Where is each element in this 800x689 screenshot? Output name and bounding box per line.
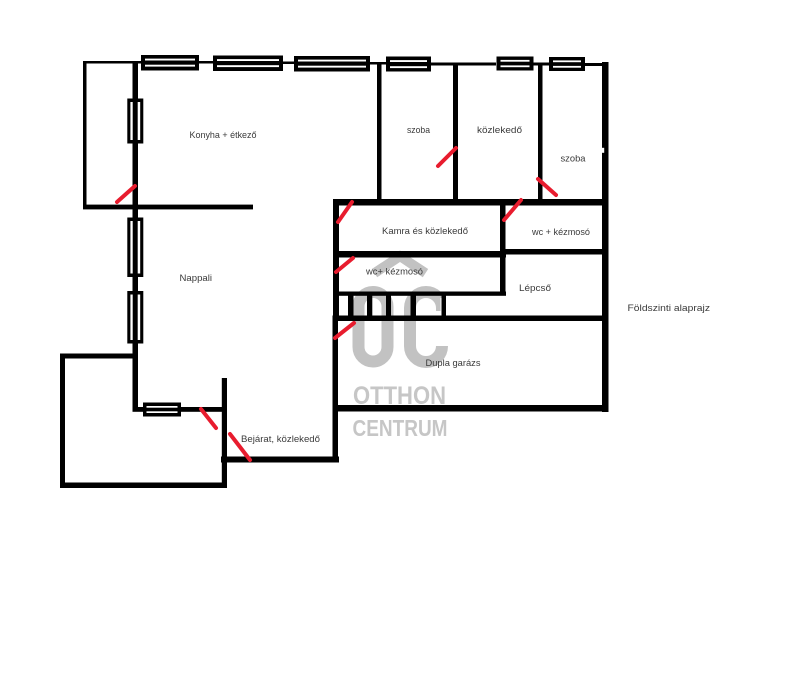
svg-text:szoba: szoba bbox=[407, 125, 431, 136]
svg-text:Bejárat, közlekedő: Bejárat, közlekedő bbox=[241, 434, 320, 445]
svg-text:Lépcső: Lépcső bbox=[519, 283, 551, 294]
svg-text:Nappali: Nappali bbox=[180, 273, 213, 284]
svg-text:wc + kézmosó: wc + kézmosó bbox=[531, 227, 590, 238]
svg-text:Földszinti alaprajz: Földszinti alaprajz bbox=[628, 303, 711, 314]
svg-text:Dupla garázs: Dupla garázs bbox=[426, 358, 481, 369]
svg-text:közlekedő: közlekedő bbox=[477, 125, 522, 136]
svg-text:Konyha + étkező: Konyha + étkező bbox=[190, 130, 257, 141]
svg-text:wc+ kézmosó: wc+ kézmosó bbox=[365, 267, 423, 278]
svg-text:Kamra és közlekedő: Kamra és közlekedő bbox=[382, 226, 468, 237]
svg-text:szoba: szoba bbox=[561, 154, 587, 165]
svg-text:CENTRUM: CENTRUM bbox=[353, 415, 448, 441]
